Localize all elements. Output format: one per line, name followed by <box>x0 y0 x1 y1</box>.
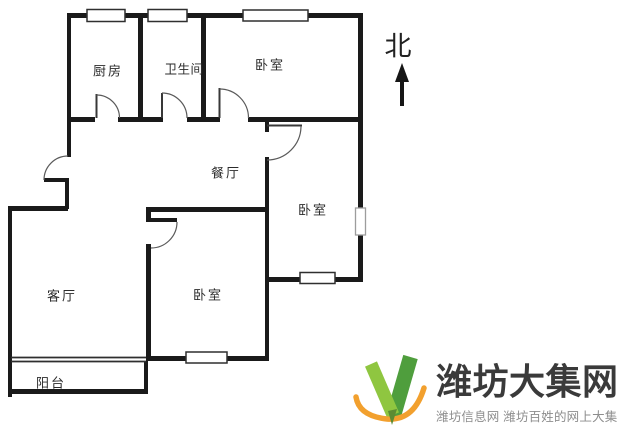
north-label: 北 <box>385 25 412 64</box>
window-bedroom-east-side <box>356 208 366 235</box>
wall-living-north <box>8 206 68 211</box>
room-label-bedroom-east: 卧室 <box>298 200 328 219</box>
wall-entry-south <box>65 182 69 209</box>
wall-kitchen-west <box>67 13 71 157</box>
window-bedroom-south <box>186 352 227 363</box>
window-bedroom-east-south <box>300 273 335 284</box>
bedroom-north-door-arc <box>220 89 249 118</box>
wall-bedroom-south-north <box>146 207 265 212</box>
bedroom-south-door-arc <box>151 222 177 248</box>
room-label-bedroom-north: 卧室 <box>255 55 285 74</box>
entry-door-arc <box>44 156 68 180</box>
kitchen-door-arc <box>97 95 120 118</box>
wall-bedroom-east-door-post <box>265 122 269 132</box>
wall-mid-east <box>248 117 363 122</box>
entry-door-leaf <box>44 178 69 182</box>
wall-mid-bathroom-bedroom <box>187 117 220 122</box>
room-label-kitchen: 厨房 <box>93 61 123 80</box>
room-label-dining: 餐厅 <box>211 163 241 182</box>
wall-bedrooms-west <box>265 157 269 361</box>
watermark-subtitle: 潍坊信息网 潍坊百姓的网上大集 <box>436 406 619 425</box>
watermark-logo: 潍坊大集网 潍坊信息网 潍坊百姓的网上大集 <box>436 363 619 425</box>
window-bathroom <box>148 10 187 22</box>
wall-east-exterior <box>358 13 363 282</box>
window-bedroom-north <box>243 10 308 21</box>
wall-mid-kitchen-left <box>67 117 95 122</box>
north-arrow-head <box>395 63 409 82</box>
bedroom-east-door-arc <box>267 126 301 160</box>
wall-mid-kitchen-bathroom <box>118 117 163 122</box>
room-label-bathroom: 卫生间 <box>164 59 203 78</box>
watermark-title: 潍坊大集网 <box>436 363 619 401</box>
room-label-bedroom-south: 卧室 <box>193 285 223 304</box>
wall-bedroom-south-west <box>146 244 151 361</box>
logo-v-left-stroke <box>371 364 393 415</box>
north-arrow <box>395 63 409 106</box>
wall-balcony-east <box>144 361 148 393</box>
door-arcs <box>44 89 301 248</box>
wall-balcony-south <box>8 389 148 394</box>
room-label-living: 客厅 <box>47 286 77 305</box>
wall-kitchen-bathroom-divider <box>138 13 143 122</box>
floorplan: 厨房 卫生间 卧室 餐厅 卧室 卧室 客厅 阳台 北 潍坊大集网 潍坊信息网 潍… <box>0 0 640 439</box>
brand-mark <box>356 357 424 425</box>
bathroom-door-arc <box>162 93 187 118</box>
bedroom-south-door-leaf <box>151 218 177 222</box>
balcony-slider <box>11 358 146 362</box>
windows <box>87 10 366 364</box>
room-label-balcony: 阳台 <box>36 373 66 392</box>
wall-bedroom-south-door-post <box>146 207 151 222</box>
wall-west-exterior <box>8 206 12 397</box>
window-kitchen <box>87 10 125 22</box>
